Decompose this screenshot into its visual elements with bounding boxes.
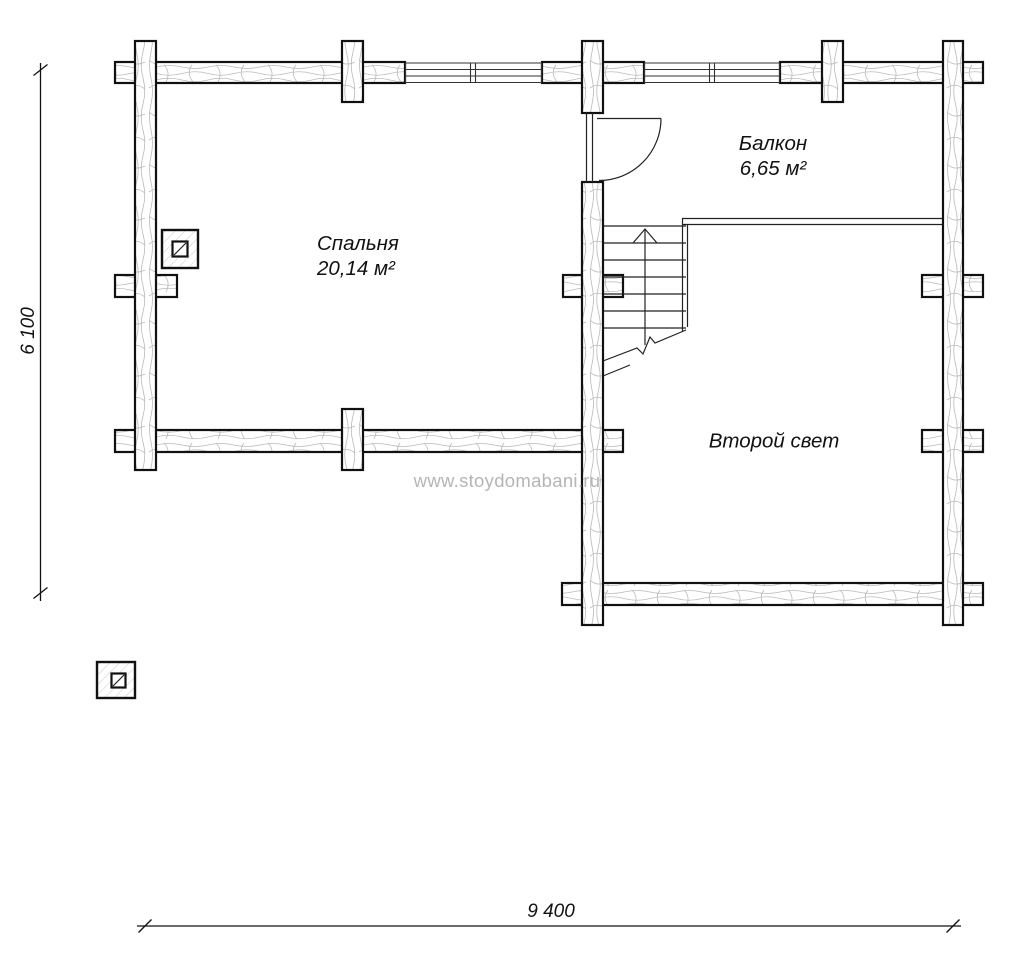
balcony-room-area: 6,65 м² bbox=[739, 156, 807, 181]
balcony-label-block: Балкон 6,65 м² bbox=[739, 131, 807, 181]
staircase bbox=[603, 225, 688, 376]
top-wall bbox=[115, 62, 983, 83]
freestanding-column-symbol bbox=[97, 662, 135, 698]
bedroom-room-area: 20,14 м² bbox=[317, 256, 399, 281]
horizontal-dimension-text: 9 400 bbox=[527, 901, 575, 923]
middle-wall-horizontal bbox=[115, 430, 623, 452]
balcony-room-name: Балкон bbox=[739, 131, 807, 156]
left-wall bbox=[135, 41, 156, 470]
bedroom-label-block: Спальня 20,14 м² bbox=[317, 231, 399, 281]
door-swing bbox=[587, 113, 662, 182]
window-1 bbox=[405, 63, 542, 83]
bedroom-room-name: Спальня bbox=[317, 231, 399, 256]
floor-plan: Спальня 20,14 м² Балкон 6,65 м² Второй с… bbox=[0, 0, 1024, 967]
second-light-label: Второй свет bbox=[709, 429, 840, 454]
bedroom-column-symbol bbox=[162, 230, 198, 268]
window-2 bbox=[644, 63, 780, 83]
watermark: www.stoydomabani.ru bbox=[414, 470, 601, 492]
right-wall bbox=[943, 41, 963, 625]
bottom-wall bbox=[562, 583, 983, 605]
balcony-railing bbox=[682, 219, 942, 225]
vertical-dimension-text: 6 100 bbox=[18, 307, 40, 355]
log-cross-joints bbox=[115, 275, 983, 452]
